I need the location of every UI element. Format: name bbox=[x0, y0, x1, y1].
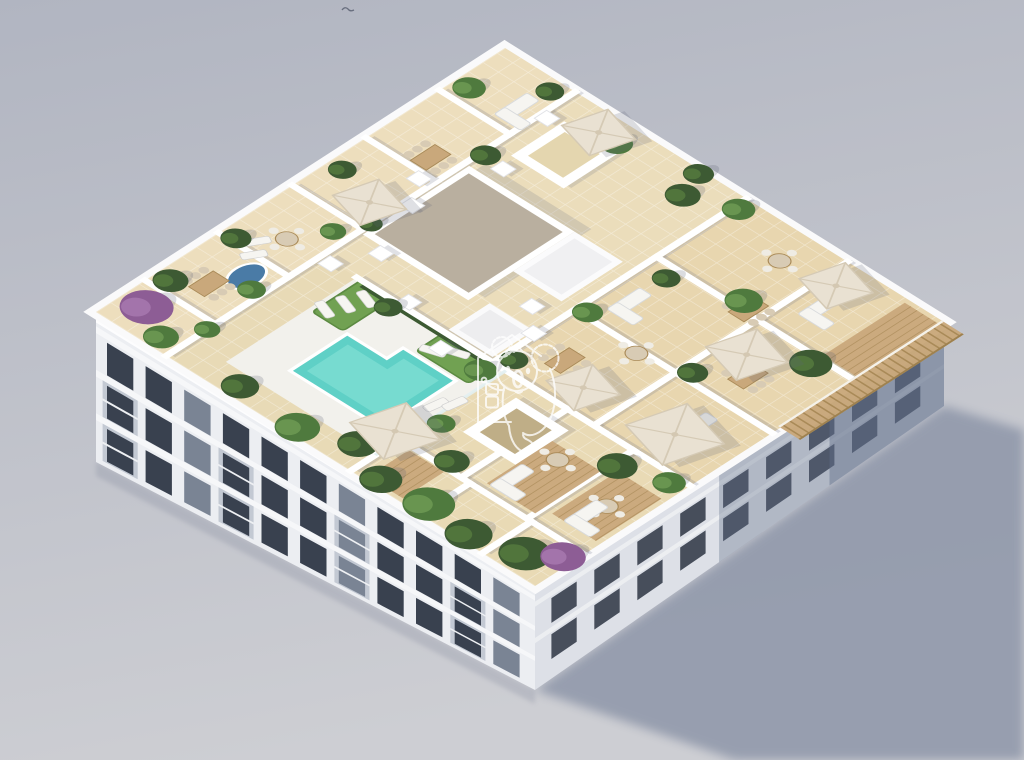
koala-eye-right bbox=[526, 368, 530, 374]
render-image bbox=[0, 0, 1024, 760]
koala-eye-left bbox=[506, 366, 510, 372]
